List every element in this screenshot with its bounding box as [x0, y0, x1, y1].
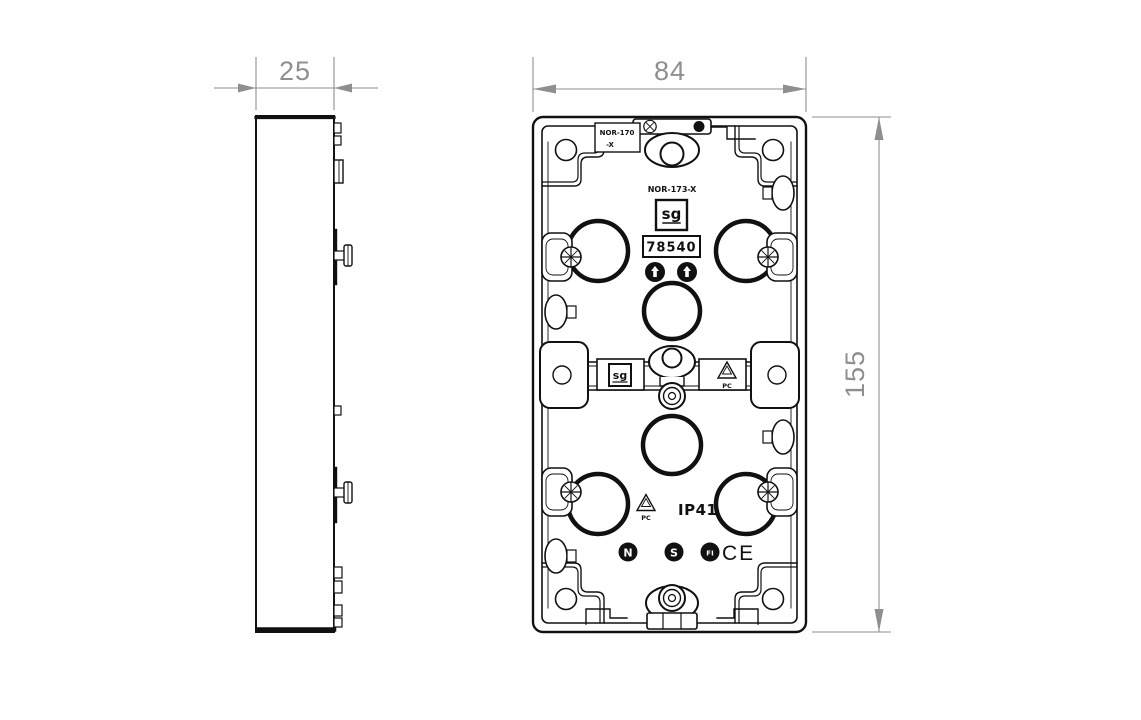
side-tab [334, 406, 341, 415]
side-tab [334, 567, 342, 578]
centre-boss-top [645, 133, 699, 167]
middle-band: sg PC [540, 342, 799, 409]
dimension-width: 84 [533, 56, 806, 112]
side-tab [334, 581, 342, 593]
part-number: 78540 [646, 241, 696, 256]
side-tab [334, 123, 341, 133]
dimension-depth-label: 25 [279, 56, 311, 86]
mold-mark-icon [694, 121, 705, 132]
cert-nemko: N [623, 547, 632, 560]
mold-ref-line2: -X [606, 141, 614, 149]
side-tab [334, 605, 342, 616]
cert-semko: S [670, 547, 678, 560]
ip-rating: IP41 [678, 501, 717, 519]
cert-fimko: FI [706, 550, 713, 558]
date-wheel-icon [645, 262, 665, 282]
centre-boss-mid [649, 346, 695, 378]
front-view: sg PC NOR-170 -X [533, 117, 806, 632]
technical-drawing: sg PC NOR-170 -X [0, 0, 1141, 720]
sg-logo-top: sg [662, 205, 682, 223]
mounting-block-left [540, 342, 588, 408]
ce-mark: CE [722, 542, 755, 565]
date-wheel-icon [677, 262, 697, 282]
side-tab [334, 136, 341, 145]
bottom-tab [647, 613, 697, 629]
sg-logo-mid: sg [613, 369, 627, 382]
mold-ref-plate [595, 123, 640, 152]
mold-ref-line1: NOR-170 [600, 129, 635, 137]
side-tab [334, 618, 342, 627]
dimension-height: 155 [812, 117, 891, 632]
material-label-mid: PC [722, 382, 732, 390]
dimension-height-label: 155 [840, 350, 870, 398]
dimension-width-label: 84 [654, 56, 686, 86]
side-tab [334, 160, 343, 183]
mold-ref-center: NOR-173-X [648, 185, 697, 194]
drawing-canvas: sg PC NOR-170 -X [0, 0, 1141, 720]
mounting-block-right [751, 342, 799, 408]
material-label-bottom: PC [641, 514, 651, 522]
side-view [256, 116, 352, 632]
side-view-body [256, 116, 334, 632]
dimension-depth: 25 [214, 56, 378, 110]
